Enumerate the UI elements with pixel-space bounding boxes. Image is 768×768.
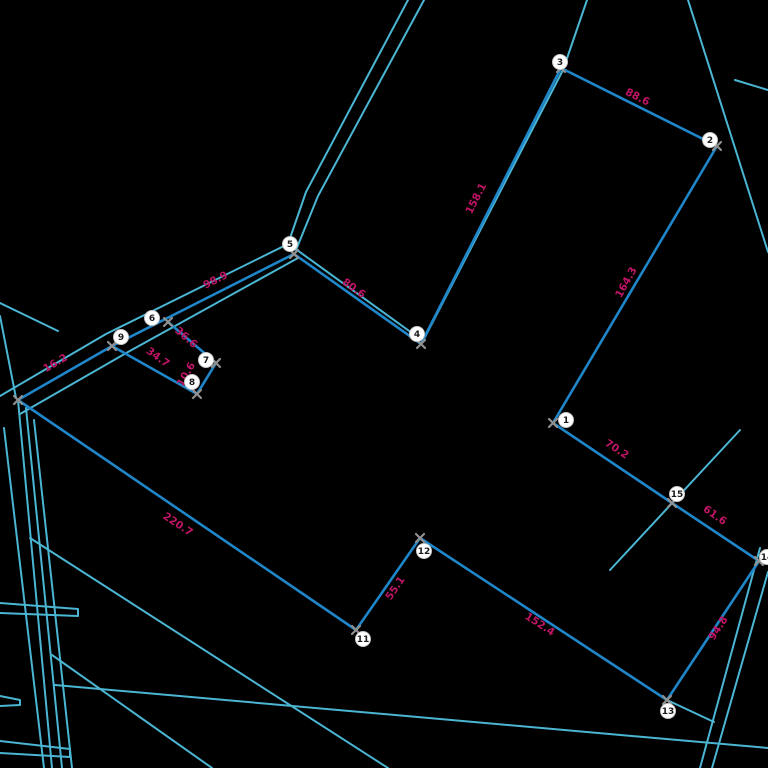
boundary-line-5-4 bbox=[294, 254, 421, 344]
road-top-edge-a bbox=[296, 0, 424, 250]
boundary-line-9-5 bbox=[112, 254, 294, 346]
survey-point-number-1: 1 bbox=[563, 416, 569, 426]
road-west-fan-4 bbox=[4, 428, 44, 768]
road-northeast bbox=[688, 0, 768, 252]
survey-point-number-11: 11 bbox=[357, 635, 370, 645]
road-diagonal-1 bbox=[30, 538, 388, 768]
road-along-3-4-5 bbox=[297, 0, 587, 341]
survey-point-number-4: 4 bbox=[414, 330, 420, 340]
survey-point-number-13: 13 bbox=[662, 707, 675, 717]
parcel-map-svg[interactable]: 88.6164.3158.180.698.916.2220.755.1152.4… bbox=[0, 0, 768, 768]
boundary-line-2-1 bbox=[553, 146, 717, 423]
road-edge-stub-1 bbox=[0, 603, 78, 616]
road-top-edge-b bbox=[0, 0, 408, 396]
boundary-line-3-4 bbox=[421, 68, 561, 344]
road-edge-stub-2 bbox=[0, 696, 20, 706]
road-northeast-stub bbox=[735, 80, 768, 90]
vertex-cross-marker bbox=[164, 318, 172, 326]
survey-point-number-9: 9 bbox=[118, 333, 124, 343]
distance-label-10-11: 220.7 bbox=[161, 510, 195, 539]
road-west-branch bbox=[0, 303, 58, 331]
boundary-line-3-2 bbox=[561, 68, 717, 146]
road-west-fan-2 bbox=[26, 408, 62, 768]
boundary-line-11-12 bbox=[356, 538, 420, 630]
road-diagonal-2 bbox=[52, 655, 212, 768]
road-southeast-a bbox=[700, 548, 760, 768]
survey-point-number-3: 3 bbox=[557, 58, 563, 68]
vertex-cross-marker bbox=[416, 534, 424, 542]
road-corridor-lower bbox=[20, 258, 298, 414]
boundary-line-10-11 bbox=[18, 400, 356, 630]
distance-label-11-12: 55.1 bbox=[383, 574, 407, 602]
road-west-fan-3 bbox=[34, 420, 72, 768]
boundary-line-1-15 bbox=[553, 423, 672, 503]
road-southeast-b bbox=[712, 572, 768, 768]
survey-point-number-7: 7 bbox=[203, 356, 209, 366]
vertex-cross-marker bbox=[549, 419, 557, 427]
survey-point-number-12: 12 bbox=[418, 547, 431, 557]
distance-label-12-13: 152.4 bbox=[522, 610, 556, 638]
survey-point-number-14: 14 bbox=[761, 553, 768, 563]
survey-point-number-2: 2 bbox=[707, 136, 713, 146]
survey-point-number-6: 6 bbox=[149, 314, 155, 324]
map-canvas[interactable]: 88.6164.3158.180.698.916.2220.755.1152.4… bbox=[0, 0, 768, 768]
survey-point-number-5: 5 bbox=[287, 240, 293, 250]
distance-label-3-4: 158.1 bbox=[463, 181, 489, 216]
distance-label-13-14: 94.8 bbox=[706, 614, 730, 642]
vertex-cross-marker bbox=[663, 696, 671, 704]
survey-point-number-8: 8 bbox=[189, 378, 195, 388]
vertex-cross-marker bbox=[193, 390, 201, 398]
survey-point-number-15: 15 bbox=[671, 490, 684, 500]
road-west-edge bbox=[0, 316, 16, 398]
